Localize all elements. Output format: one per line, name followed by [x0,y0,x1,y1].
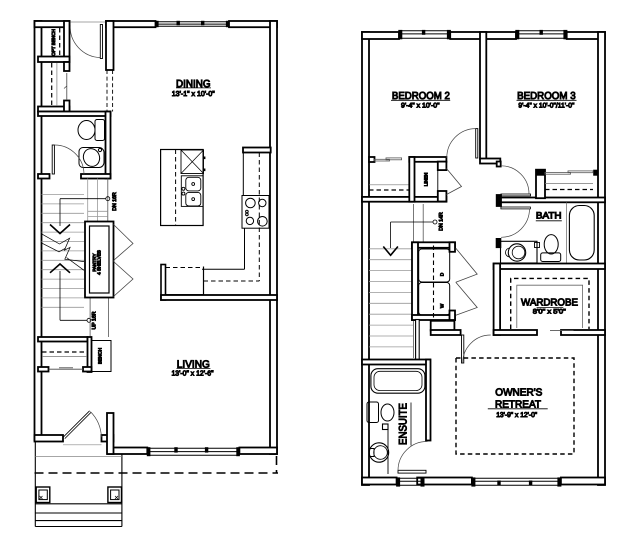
svg-text:OWNER'S: OWNER'S [495,388,542,399]
svg-text:ENSUITE: ENSUITE [398,403,410,445]
svg-text:OPT BENCH: OPT BENCH [51,29,56,56]
svg-text:4 SHELVES: 4 SHELVES [97,250,102,275]
svg-text:DN 14R: DN 14R [439,212,445,231]
svg-text:13'-1" x 10'-0": 13'-1" x 10'-0" [172,89,215,98]
svg-text:WARDROBE: WARDROBE [521,297,578,308]
svg-text:W: W [440,303,445,308]
svg-text:BENCH: BENCH [98,348,103,364]
svg-text:9'-4" x 10'-0": 9'-4" x 10'-0" [401,102,440,109]
svg-text:13'-0" x 12'-6": 13'-0" x 12'-6" [172,369,214,378]
svg-text:13'-9" x 12'-0": 13'-9" x 12'-0" [496,412,538,419]
svg-text:UP 16R: UP 16R [92,311,98,329]
svg-text:BATH: BATH [536,210,562,220]
svg-text:D: D [440,272,445,276]
svg-text:9'-4" x 10'-0"/11'-0": 9'-4" x 10'-0"/11'-0" [518,102,575,109]
svg-text:LINEN: LINEN [424,173,429,187]
svg-text:8'0" x 5'0": 8'0" x 5'0" [533,309,567,316]
svg-text:DN 16R: DN 16R [112,192,118,211]
